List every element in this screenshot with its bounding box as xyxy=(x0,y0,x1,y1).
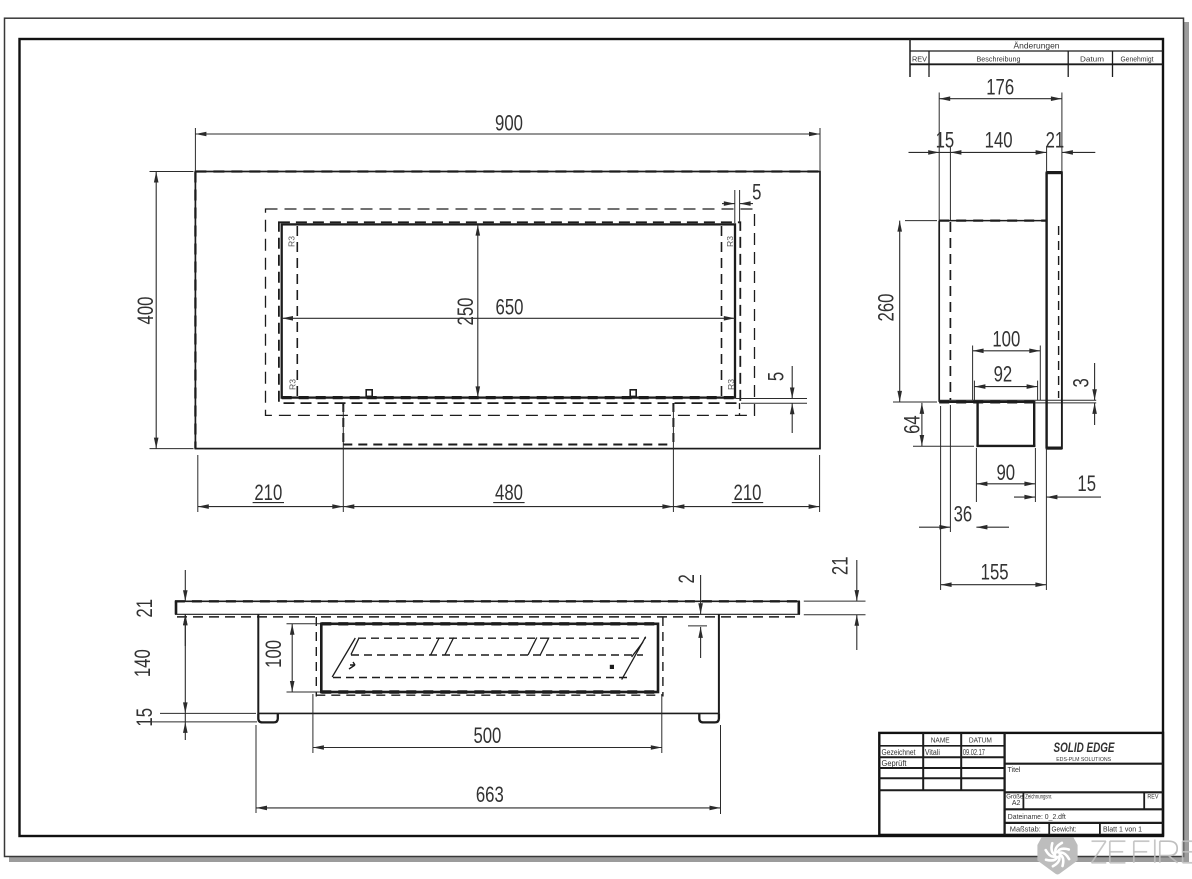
svg-text:Vitali: Vitali xyxy=(925,748,940,757)
svg-text:R3: R3 xyxy=(287,236,297,247)
svg-text:15: 15 xyxy=(132,708,157,727)
svg-text:140: 140 xyxy=(985,128,1013,153)
svg-text:Datum: Datum xyxy=(1080,54,1104,63)
svg-text:2: 2 xyxy=(674,574,699,583)
svg-text:5: 5 xyxy=(764,372,789,381)
svg-text:Dateiname: 0_2.dft: Dateiname: 0_2.dft xyxy=(1008,812,1067,821)
svg-text:250: 250 xyxy=(453,298,478,326)
svg-text:R3: R3 xyxy=(288,379,298,390)
svg-text:480: 480 xyxy=(495,480,523,505)
svg-text:210: 210 xyxy=(254,480,282,505)
svg-text:NAME: NAME xyxy=(931,737,950,744)
svg-text:R3: R3 xyxy=(726,379,736,390)
svg-text:R3: R3 xyxy=(725,236,735,247)
svg-text:90: 90 xyxy=(997,460,1016,485)
svg-text:A2: A2 xyxy=(1012,800,1021,807)
svg-text:Beschreibung: Beschreibung xyxy=(977,54,1021,63)
svg-text:176: 176 xyxy=(986,74,1014,99)
svg-text:Gewicht:: Gewicht: xyxy=(1052,826,1077,833)
svg-text:92: 92 xyxy=(994,362,1013,387)
svg-text:09.02.17: 09.02.17 xyxy=(963,748,985,757)
svg-text:Blatt 1 von 1: Blatt 1 von 1 xyxy=(1103,826,1142,833)
svg-text:64: 64 xyxy=(900,415,925,434)
svg-text:5: 5 xyxy=(752,180,761,205)
svg-text:Genehmigt: Genehmigt xyxy=(1121,54,1155,63)
svg-text:100: 100 xyxy=(261,640,286,668)
svg-text:EDS-PLM SOLUTIONS: EDS-PLM SOLUTIONS xyxy=(1056,757,1111,763)
svg-text:Änderungen: Änderungen xyxy=(1014,42,1060,51)
svg-text:15: 15 xyxy=(936,128,955,153)
svg-text:21: 21 xyxy=(132,599,157,618)
svg-text:21: 21 xyxy=(1046,128,1065,153)
svg-text:SOLID EDGE: SOLID EDGE xyxy=(1054,740,1116,755)
svg-text:21: 21 xyxy=(827,557,852,576)
svg-text:260: 260 xyxy=(874,294,899,322)
svg-text:100: 100 xyxy=(992,326,1020,351)
svg-text:400: 400 xyxy=(133,297,158,325)
svg-text:3: 3 xyxy=(1068,378,1093,387)
svg-text:Gezeichnet: Gezeichnet xyxy=(882,748,917,757)
svg-text:15: 15 xyxy=(1077,471,1096,496)
svg-text:140: 140 xyxy=(130,649,155,677)
svg-text:36: 36 xyxy=(954,501,973,526)
svg-text:Zeichnungsnr.: Zeichnungsnr. xyxy=(1025,793,1052,800)
svg-text:155: 155 xyxy=(981,560,1009,585)
svg-text:Geprüft: Geprüft xyxy=(882,759,908,768)
svg-text:DATUM: DATUM xyxy=(969,737,992,744)
svg-text:210: 210 xyxy=(734,480,762,505)
svg-text:REV: REV xyxy=(1147,794,1159,801)
svg-text:REV: REV xyxy=(912,54,927,63)
svg-text:Maßstab:: Maßstab: xyxy=(1010,826,1041,833)
svg-text:500: 500 xyxy=(473,723,501,748)
svg-text:663: 663 xyxy=(476,782,504,807)
svg-text:Titel: Titel xyxy=(1008,767,1021,774)
svg-text:650: 650 xyxy=(496,294,524,319)
svg-text:900: 900 xyxy=(495,111,523,136)
